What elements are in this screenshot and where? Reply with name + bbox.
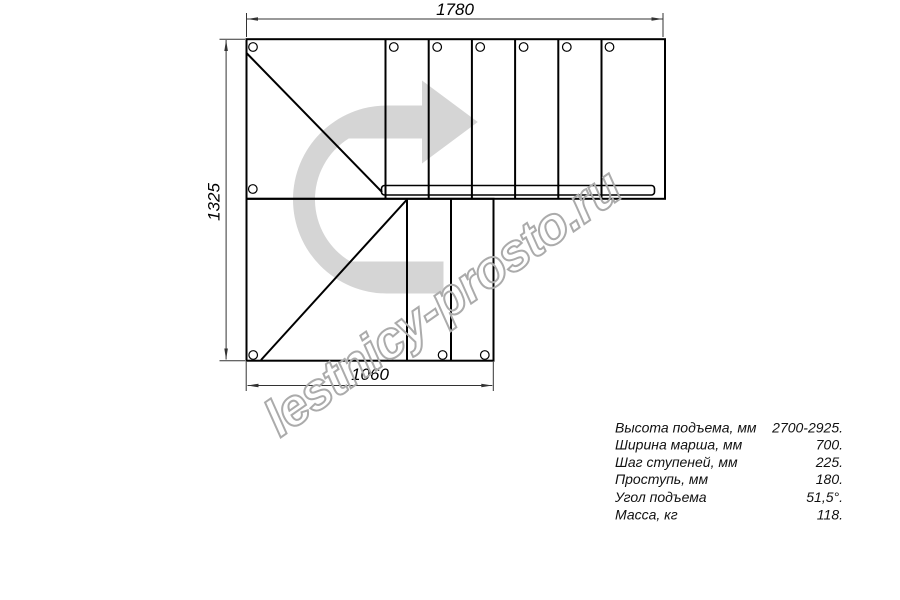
svg-text:Проступь, мм: Проступь, мм — [615, 471, 709, 487]
svg-text:1325: 1325 — [205, 183, 224, 221]
svg-text:2700-2925.: 2700-2925. — [771, 419, 843, 435]
svg-text:1780: 1780 — [436, 0, 474, 19]
svg-text:Масса, кг: Масса, кг — [615, 507, 678, 523]
svg-text:Шаг ступеней, мм: Шаг ступеней, мм — [615, 454, 738, 470]
svg-text:Ширина марша, мм: Ширина марша, мм — [615, 437, 743, 453]
svg-text:225.: 225. — [815, 454, 843, 470]
svg-text:700.: 700. — [816, 437, 843, 453]
svg-text:Угол подъема: Угол подъема — [614, 489, 707, 505]
svg-text:51,5°.: 51,5°. — [806, 489, 843, 505]
svg-text:118.: 118. — [817, 507, 843, 523]
svg-text:180.: 180. — [816, 471, 843, 487]
svg-text:Высота подъема, мм: Высота подъема, мм — [615, 419, 757, 435]
